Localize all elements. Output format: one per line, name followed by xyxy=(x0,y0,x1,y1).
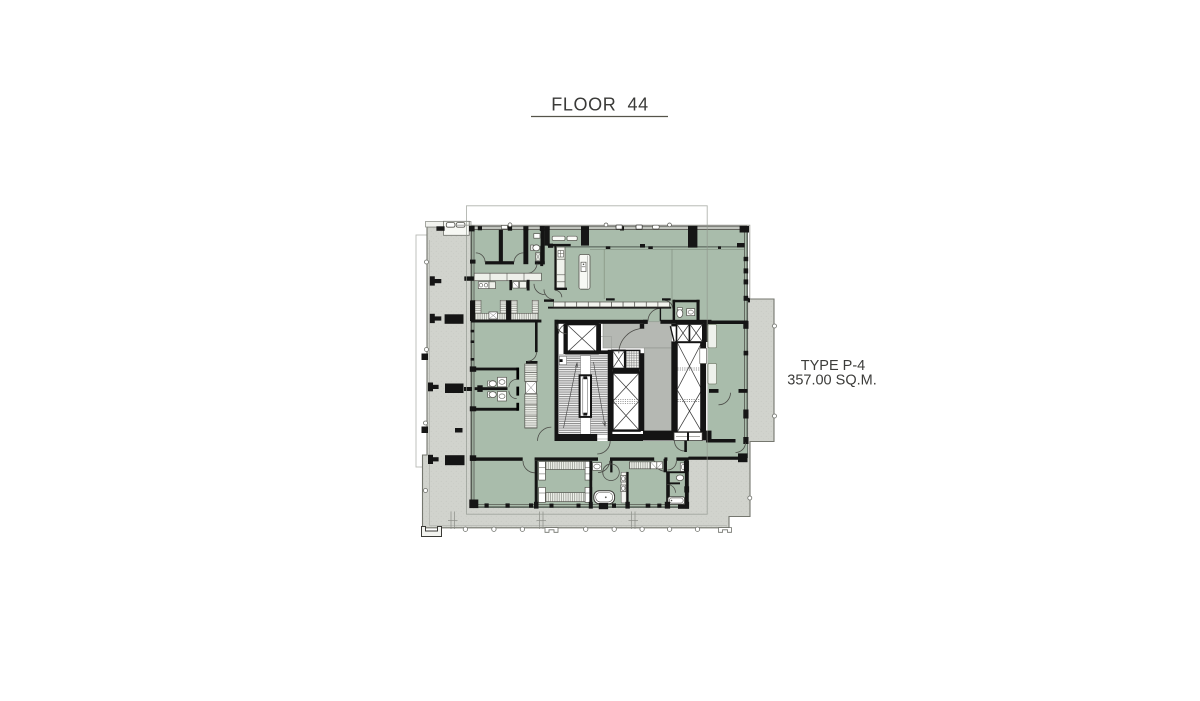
svg-text:FLOOR 44: FLOOR 44 xyxy=(551,95,648,115)
svg-text:357.00 SQ.M.: 357.00 SQ.M. xyxy=(787,373,876,389)
